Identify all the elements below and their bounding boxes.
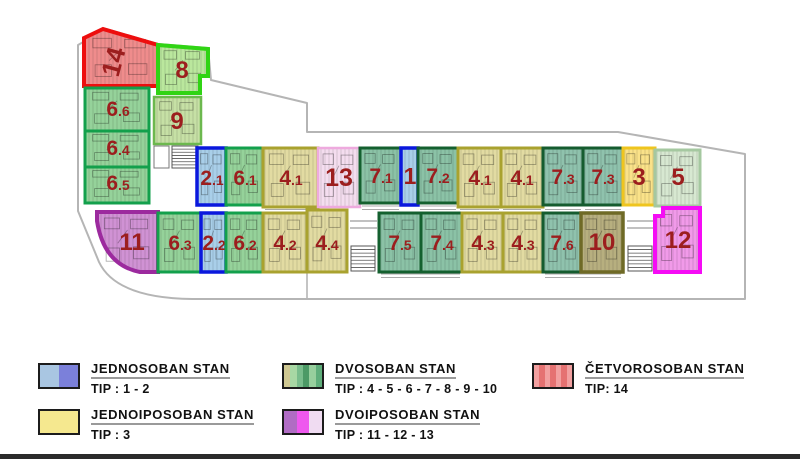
- legend-title: JEDNOIPOSOBAN STAN: [91, 407, 254, 425]
- unit-4.3b[interactable]: 4.3: [503, 213, 543, 272]
- unit-4.1c[interactable]: 4.1: [501, 148, 543, 207]
- legend-swatch-segment: [40, 365, 59, 387]
- legend-title: DVOIPOSOBAN STAN: [335, 407, 480, 425]
- unit-5[interactable]: 5: [655, 150, 700, 206]
- legend-swatch-dvosoban: [282, 363, 324, 389]
- unit-4.1a[interactable]: 4.1: [263, 148, 318, 207]
- unit-8[interactable]: 8: [158, 45, 208, 93]
- unit-14[interactable]: 14: [84, 29, 158, 86]
- unit-label: 12: [665, 227, 692, 254]
- legend-swatch-segment: [297, 411, 310, 433]
- unit-6.1[interactable]: 6.1: [226, 148, 263, 205]
- legend-title: JEDNOSOBAN STAN: [91, 361, 230, 379]
- unit-7.1[interactable]: 7.1: [360, 148, 401, 203]
- legend-swatch-segment: [316, 365, 322, 387]
- legend-tip: TIP : 11 - 12 - 13: [335, 428, 480, 442]
- unit-6.4[interactable]: 6.4: [85, 131, 149, 167]
- staircase-icon: [351, 246, 375, 271]
- staircase-icon: [172, 146, 198, 168]
- legend-item-dvosoban: DVOSOBAN STAN TIP : 4 - 5 - 6 - 7 - 8 - …: [282, 360, 497, 396]
- unit-1[interactable]: 1: [401, 148, 418, 205]
- unit-label: 5: [671, 164, 684, 191]
- legend-item-jednoiposoban: JEDNOIPOSOBAN STAN TIP : 3: [38, 406, 254, 442]
- unit-7.3a[interactable]: 7.3: [543, 148, 583, 205]
- unit-6.3[interactable]: 6.3: [158, 213, 201, 272]
- floor-plan-page: 1486.696.46.5112.16.14.1137.117.24.14.17…: [0, 0, 800, 459]
- legend-item-jednosoban: JEDNOSOBAN STAN TIP : 1 - 2: [38, 360, 230, 396]
- unit-7.2[interactable]: 7.2: [418, 148, 458, 203]
- floor-plan: 1486.696.46.5112.16.14.1137.117.24.14.17…: [0, 0, 800, 345]
- unit-2.1[interactable]: 2.1: [197, 148, 226, 205]
- legend-tip: TIP : 3: [91, 428, 254, 442]
- unit-6.2[interactable]: 6.2: [226, 213, 263, 272]
- unit-12[interactable]: 12: [655, 208, 700, 272]
- legend-title: DVOSOBAN STAN: [335, 361, 456, 379]
- unit-label: 8: [175, 57, 188, 84]
- legend-swatch-segment: [40, 411, 78, 433]
- unit-4.1b[interactable]: 4.1: [458, 148, 501, 207]
- unit-label: 11: [119, 229, 144, 256]
- legend-item-dvoiposoban: DVOIPOSOBAN STAN TIP : 11 - 12 - 13: [282, 406, 480, 442]
- unit-2.2[interactable]: 2.2: [201, 213, 226, 272]
- legend-tip: TIP : 1 - 2: [91, 382, 230, 396]
- legend-swatch-jednosoban: [38, 363, 80, 389]
- legend-swatch-segment: [284, 411, 297, 433]
- legend-swatch-jednoiposoban: [38, 409, 80, 435]
- unit-label: 13: [325, 164, 353, 192]
- unit-4.4[interactable]: 4.4: [307, 210, 347, 272]
- legend-tip: TIP: 14: [585, 382, 744, 396]
- unit-4.2[interactable]: 4.2: [263, 213, 307, 272]
- unit-6.5[interactable]: 6.5: [85, 167, 149, 203]
- legend-swatch-cetvorosoban: [532, 363, 574, 389]
- unit-10[interactable]: 10: [581, 213, 623, 272]
- unit-label: 10: [589, 229, 616, 256]
- unit-label: 3: [632, 164, 645, 191]
- unit-11[interactable]: 11: [97, 212, 158, 272]
- legend-swatch-segment: [567, 365, 572, 387]
- unit-13[interactable]: 13: [318, 148, 360, 207]
- unit-4.3a[interactable]: 4.3: [462, 213, 503, 272]
- unit-6.6[interactable]: 6.6: [85, 88, 149, 131]
- unit-7.6[interactable]: 7.6: [543, 213, 581, 272]
- legend-swatch-segment: [59, 365, 78, 387]
- unit-3[interactable]: 3: [623, 148, 655, 205]
- staircase-icon: [628, 246, 652, 271]
- legend-swatch-segment: [309, 411, 322, 433]
- legend-tip: TIP : 4 - 5 - 6 - 7 - 8 - 9 - 10: [335, 382, 497, 396]
- unit-9[interactable]: 9: [154, 97, 201, 144]
- unit-label: 9: [170, 108, 183, 135]
- unit-7.3b[interactable]: 7.3: [583, 148, 623, 205]
- unit-7.5[interactable]: 7.5: [379, 213, 421, 272]
- elevator-shaft: [154, 146, 169, 168]
- legend-title: ČETVOROSOBAN STAN: [585, 361, 744, 379]
- legend-swatch-dvoiposoban: [282, 409, 324, 435]
- legend-item-cetvorosoban: ČETVOROSOBAN STAN TIP: 14: [532, 360, 744, 396]
- bottom-border-bar: [0, 454, 800, 459]
- unit-7.4[interactable]: 7.4: [421, 213, 462, 272]
- unit-label: 1: [404, 163, 417, 189]
